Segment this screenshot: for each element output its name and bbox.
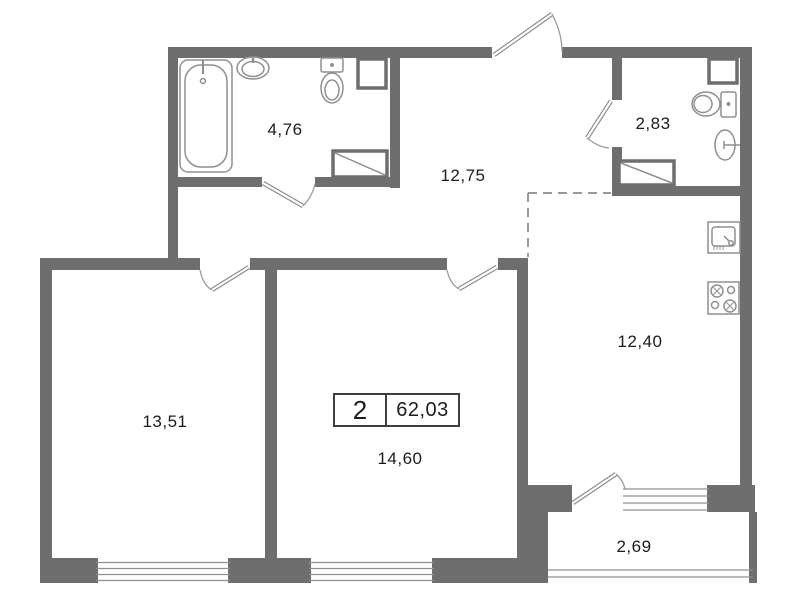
balcony-railing [548,570,753,577]
door-leaf [212,267,249,290]
door-leaf [459,267,497,289]
wall-segment [548,485,572,512]
summary-room-count: 2 [335,395,387,425]
floor-plan: 4,76 2,83 12,75 12,40 13,51 14,60 2,69 2… [0,0,799,600]
wall-segment [40,558,98,583]
wall-segment [265,270,277,558]
stove-icon [708,282,739,314]
window-glazing [96,489,753,581]
toilet-icon [321,58,343,103]
floor-plan-drawing [0,0,799,600]
area-label-room2: 14,60 [365,449,435,469]
wall-segment [612,186,752,196]
window-room1 [96,563,230,581]
wall-segment [517,270,528,485]
kitchen-sink-icon [708,222,740,253]
door-swing-arc [587,138,609,148]
ventilation-shaft-icon [358,59,386,88]
area-label-balcony: 2,69 [599,537,669,557]
door-entrance [494,14,562,55]
wall-segment [40,258,200,270]
wall-segment [250,258,447,270]
wall-segment [168,177,262,187]
wall-segment [168,47,178,270]
sink-icon [715,130,740,160]
door-leaf [263,183,303,206]
wall-segment [562,47,752,58]
door-leaf [587,101,611,138]
wall-segment [740,47,752,488]
window-kitchen [623,489,709,510]
area-label-hallway: 12,75 [428,166,498,186]
door-swing-arc [616,474,625,489]
door-balcony [573,474,625,503]
washing-machine-icon [333,151,387,177]
door-leaf [573,474,616,503]
bathtub-icon [180,60,232,172]
zone-boundary-dashed [528,193,611,257]
summary-box: 2 62,03 [333,393,460,427]
door-swing-arc [303,184,315,206]
door-room1 [200,267,249,290]
wall-segment [707,485,755,512]
door-bathroom [263,183,315,206]
toilet-icon [692,92,736,117]
wall-segment [612,58,622,100]
wall-segment [432,558,548,583]
wall-segment [749,512,757,583]
ventilation-shaft-icon [709,59,737,83]
wall-segment [40,258,52,583]
door-room2 [447,267,497,289]
door-swing-arc [552,14,562,51]
summary-total-area: 62,03 [387,395,458,425]
wall-segment [498,258,528,270]
door-leaf [494,14,552,55]
washing-machine-icon [619,161,674,185]
wall-segment [390,47,400,188]
area-label-room1: 13,51 [130,412,200,432]
area-label-kitchen: 12,40 [605,332,675,352]
area-label-wc: 2,83 [618,114,688,134]
sink-icon [237,57,269,79]
window-room2 [309,563,434,581]
wall-segment [168,47,492,58]
door-swing-arc [200,270,212,290]
door-swing-arc [447,270,459,289]
door-wc [587,101,611,148]
area-label-bathroom: 4,76 [250,120,320,140]
wall-segment [228,558,311,583]
